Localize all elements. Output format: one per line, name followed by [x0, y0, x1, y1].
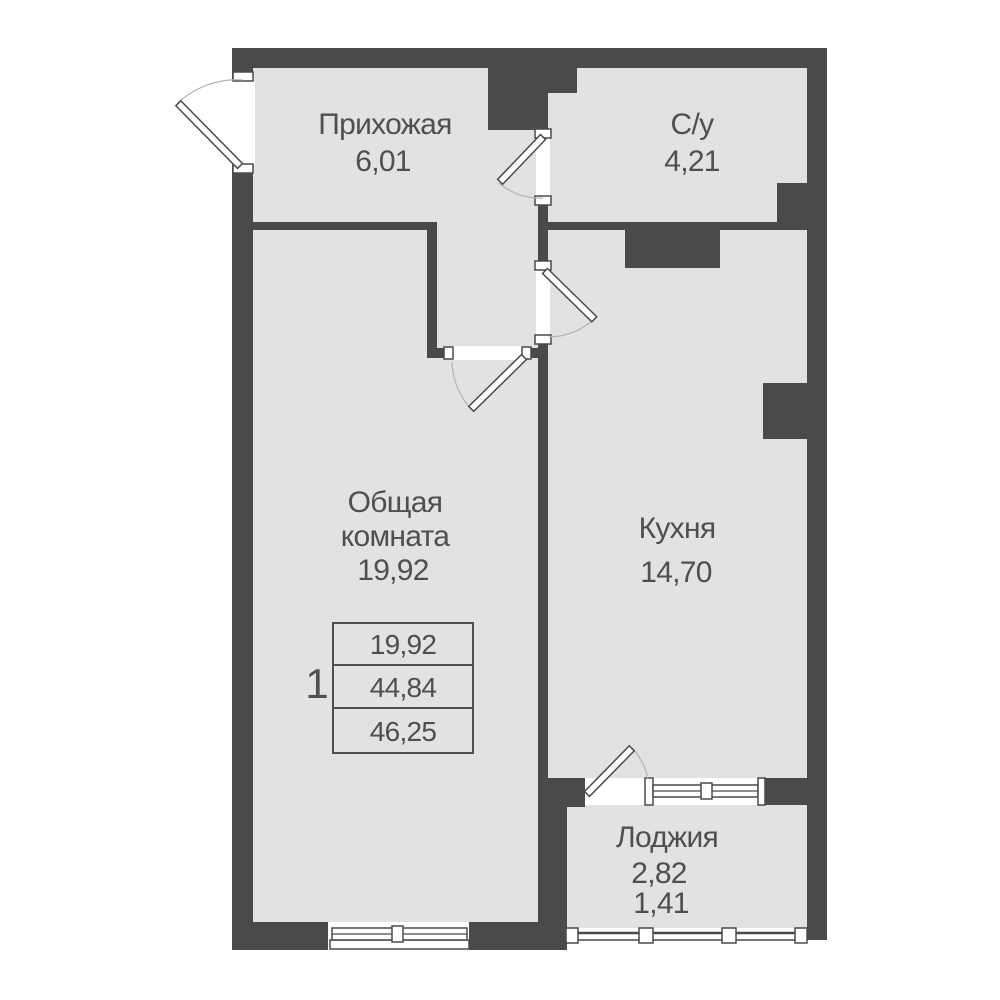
living-name-line1-label: Общая	[348, 486, 443, 519]
hallway-area-label: 6,01	[355, 145, 411, 178]
loggia-area-reduced-label: 1,41	[633, 887, 689, 920]
bathroom-name-label: С/у	[671, 108, 715, 141]
balcony-wall-right	[765, 778, 807, 805]
loggia-post-4	[795, 928, 807, 943]
living-area-label: 19,92	[357, 554, 429, 587]
vent-shaft	[625, 230, 720, 268]
bathroom-lower-notch	[777, 183, 807, 222]
left-wall	[232, 48, 253, 950]
loggia-name-label: Лоджия	[616, 821, 718, 854]
living-door-opening	[452, 346, 523, 360]
hall-bath-corner-block	[488, 68, 548, 130]
apartment-number: 1	[305, 660, 328, 707]
kitchen-name-label: Кухня	[639, 512, 716, 545]
bathroom-top-notch	[548, 68, 577, 93]
loggia-left-wall	[538, 807, 567, 950]
kitchen-pilaster	[763, 383, 807, 439]
living-jamb-left	[444, 347, 453, 359]
bathroom-jamb-bottom	[535, 196, 551, 205]
balcony-wall-left	[538, 778, 585, 807]
loggia-post-3	[722, 928, 736, 943]
living-window	[330, 926, 469, 949]
table-total-area-value: 46,25	[370, 716, 437, 747]
hallway-name-label: Прихожая	[318, 108, 451, 141]
kitchen-jamb-bottom	[535, 335, 551, 344]
hall-living-wall-vertical	[427, 222, 437, 358]
kitchen-area-label: 14,70	[640, 556, 712, 589]
top-wall	[232, 48, 827, 68]
table-living-area-value: 19,92	[370, 629, 437, 660]
balcony-unit-mullion	[645, 778, 653, 805]
balcony-window-mullion	[701, 783, 712, 799]
bath-kitchen-wall	[548, 222, 807, 230]
bathroom-area-label: 4,21	[664, 145, 720, 178]
right-wall	[807, 48, 827, 940]
mid-vertical-wall	[538, 127, 548, 778]
living-window-mullion	[392, 926, 403, 942]
living-name-line2-label: комната	[341, 520, 451, 553]
living-door-stub-left	[427, 348, 445, 358]
hall-living-wall-horizontal	[253, 222, 437, 230]
loggia-post-2	[639, 928, 653, 943]
loggia-post-1	[566, 928, 578, 943]
loggia-window-band	[567, 928, 807, 950]
floor-plan: Прихожая 6,01 С/у 4,21 Общая комната 19,…	[0, 0, 1000, 1000]
table-area-without-loggia-value: 44,84	[370, 672, 437, 703]
entry-door-opening	[230, 81, 255, 165]
balcony-unit-frame-right	[758, 778, 765, 805]
loggia-area-full-label: 2,82	[631, 857, 687, 890]
